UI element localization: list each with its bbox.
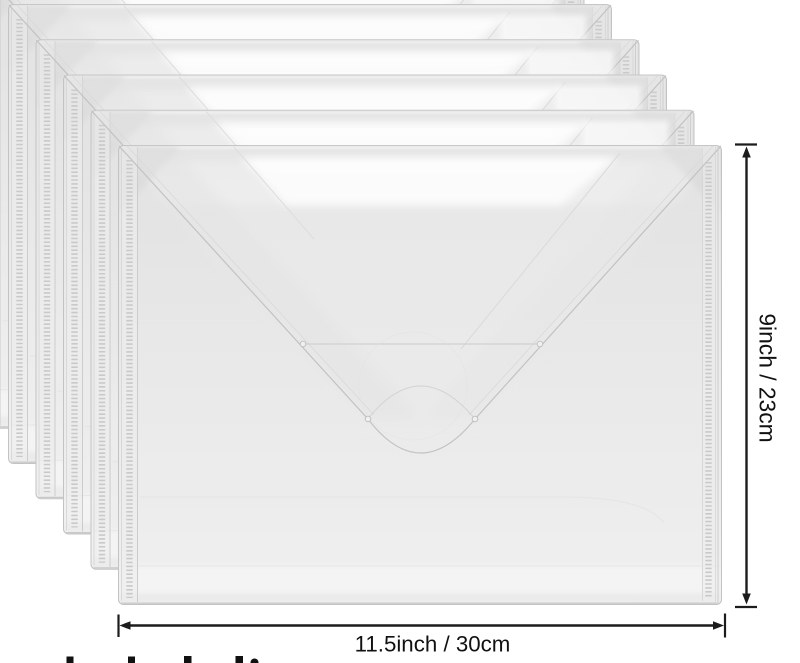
svg-text:11.5inch / 30cm: 11.5inch / 30cm bbox=[355, 632, 511, 657]
svg-text:9inch / 23cm: 9inch / 23cm bbox=[755, 313, 781, 442]
